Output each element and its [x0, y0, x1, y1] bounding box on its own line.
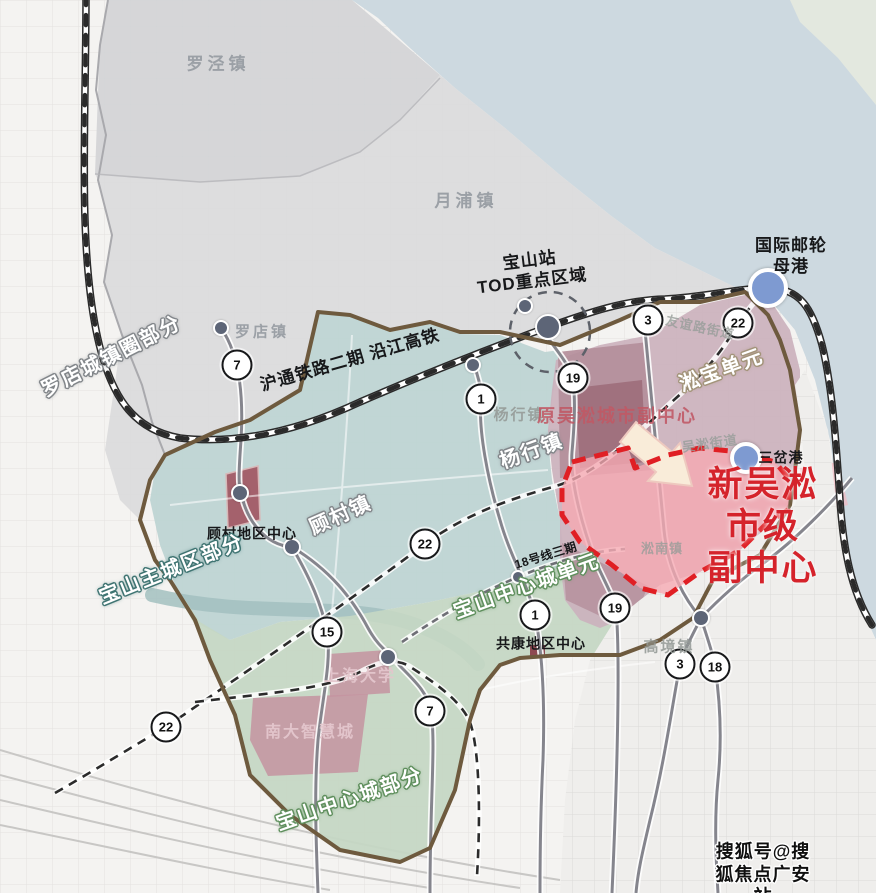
baoshan-planning-map: 71193222215722119318 罗泾镇月浦镇罗店镇罗店城镇圈部分沪通铁… — [0, 0, 876, 893]
nanda-smart-city-block — [250, 694, 368, 776]
map-canvas — [0, 0, 876, 893]
